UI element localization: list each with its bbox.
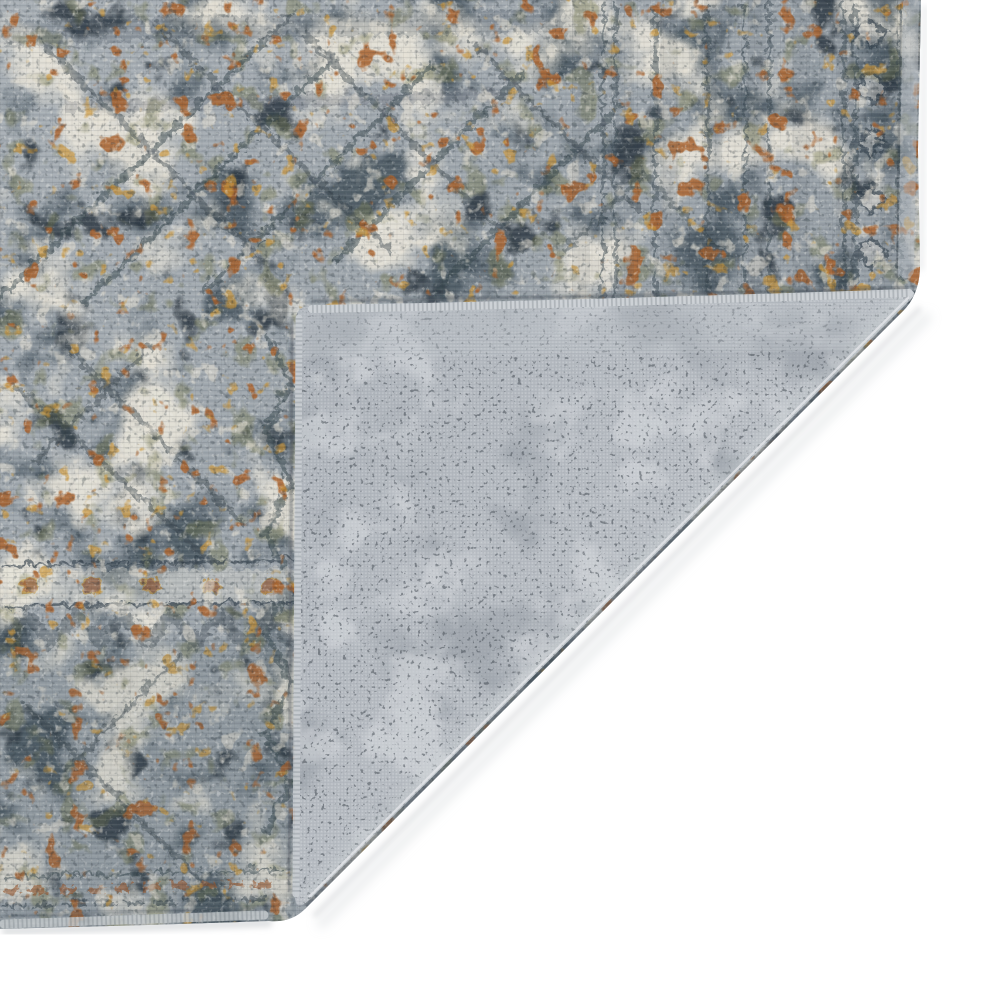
pile-right-binding (906, 4, 911, 270)
shadow-right-of-edge (921, 8, 925, 268)
rug-product-photo (0, 0, 1000, 1000)
product-photo-stage (0, 0, 1000, 1000)
